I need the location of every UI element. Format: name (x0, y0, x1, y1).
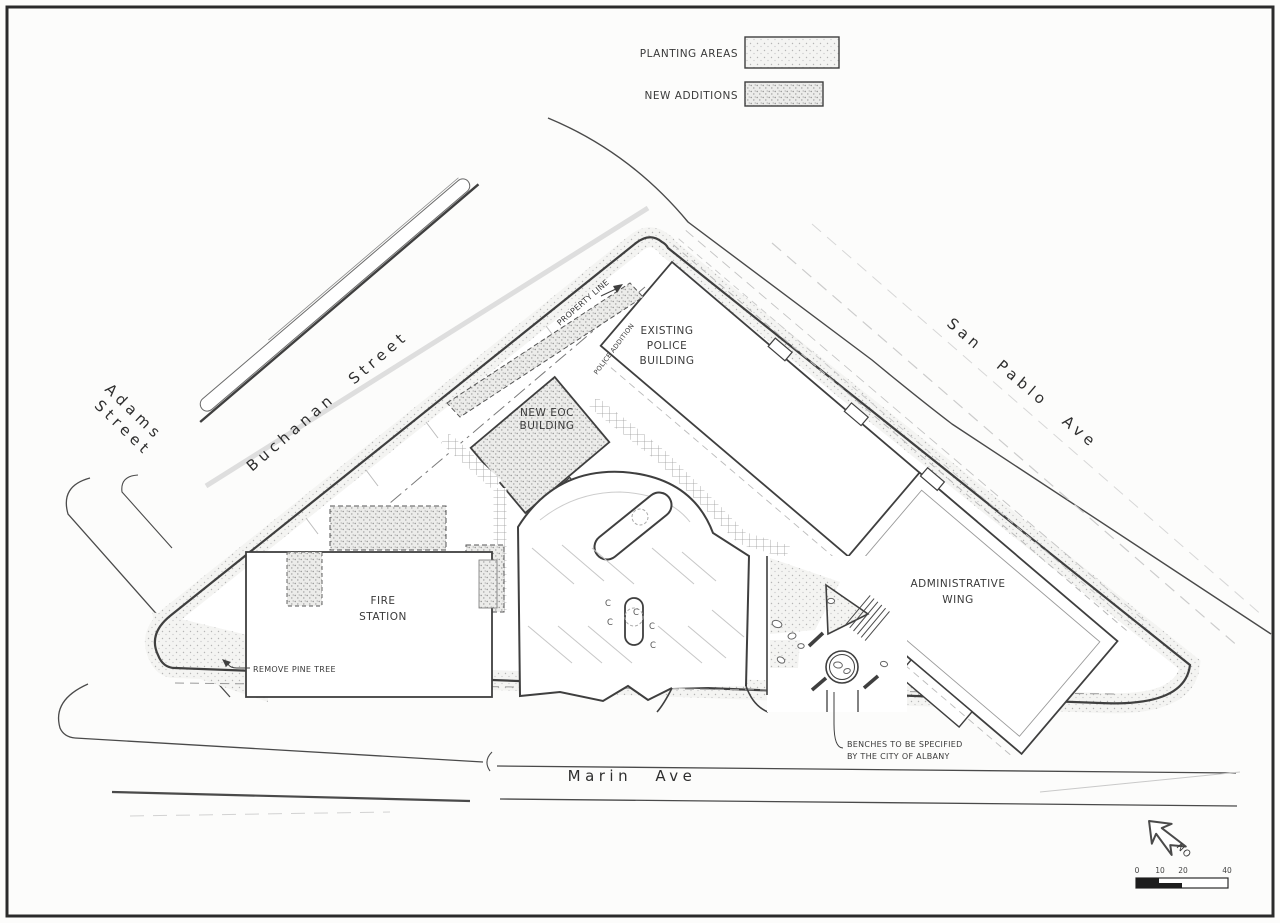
svg-text:San Pablo Ave: San Pablo Ave (943, 314, 1101, 452)
marin-south-curb-b (500, 799, 1237, 806)
fire-station-label-1: FIRE (370, 595, 395, 607)
stall-label-c5: C (633, 608, 639, 618)
stall-island (625, 598, 643, 645)
fire-station-addition-west (287, 552, 322, 606)
plaza-planting-lower (770, 640, 800, 668)
eoc-label-2: BUILDING (519, 420, 574, 432)
police-label-3: BUILDING (639, 355, 694, 367)
scale-bar: 0 10 20 40 (1135, 866, 1232, 888)
marin-south-curb-a (112, 792, 470, 801)
marin-north-curb-a (75, 738, 483, 762)
admin-wing-label-1: ADMINISTRATIVE (910, 578, 1005, 590)
marin-ave-label: Marin Ave (568, 767, 697, 785)
stall-label-c2: C (607, 618, 613, 628)
scale-bar-seg-2 (1159, 883, 1182, 888)
scale-bar-seg-1 (1136, 878, 1159, 888)
marin-faint-line (1040, 772, 1240, 792)
adams-curb-short (122, 475, 172, 548)
stall-label-c3: C (649, 622, 655, 632)
benches-note-1: BENCHES TO BE SPECIFIED (847, 740, 963, 749)
adams-street-label: Adams Street (88, 380, 169, 460)
eoc-label-1: NEW EOC (520, 407, 574, 419)
scale-tick-40: 40 (1222, 866, 1232, 875)
remove-pine-tree-note: REMOVE PINE TREE (253, 665, 336, 674)
site-plan-sheet: C C C C C (0, 0, 1280, 923)
police-label-2: POLICE (647, 340, 688, 352)
fire-station-footprint (246, 552, 492, 697)
legend-new-additions-label: NEW ADDITIONS (645, 90, 738, 102)
fire-station-label-2: STATION (359, 611, 407, 623)
admin-wing-label-2: WING (942, 594, 973, 606)
site-plan-drawing: C C C C C (0, 0, 1280, 923)
fire-station-addition-north (330, 506, 446, 550)
police-label-1: EXISTING (640, 325, 693, 337)
legend-planting-label: PLANTING AREAS (640, 48, 738, 60)
marin-curb-hook (487, 752, 492, 771)
san-pablo-ave-label: San Pablo Ave (943, 314, 1101, 452)
scale-tick-10: 10 (1155, 866, 1165, 875)
benches-note-2: BY THE CITY OF ALBANY (847, 752, 950, 761)
plaza (767, 556, 907, 712)
fire-station-east-planter (479, 560, 497, 608)
stall-label-c1: C (605, 599, 611, 609)
scale-tick-20: 20 (1178, 866, 1188, 875)
scale-tick-0: 0 (1135, 866, 1140, 875)
north-arrow-icon: NO (1139, 811, 1193, 862)
marin-west-hook (59, 684, 88, 738)
legend: PLANTING AREAS NEW ADDITIONS (640, 37, 839, 106)
marin-faint-dash (130, 812, 390, 816)
planting-areas-swatch (745, 37, 839, 68)
new-additions-swatch (745, 82, 823, 106)
stall-label-c4: C (650, 641, 656, 651)
